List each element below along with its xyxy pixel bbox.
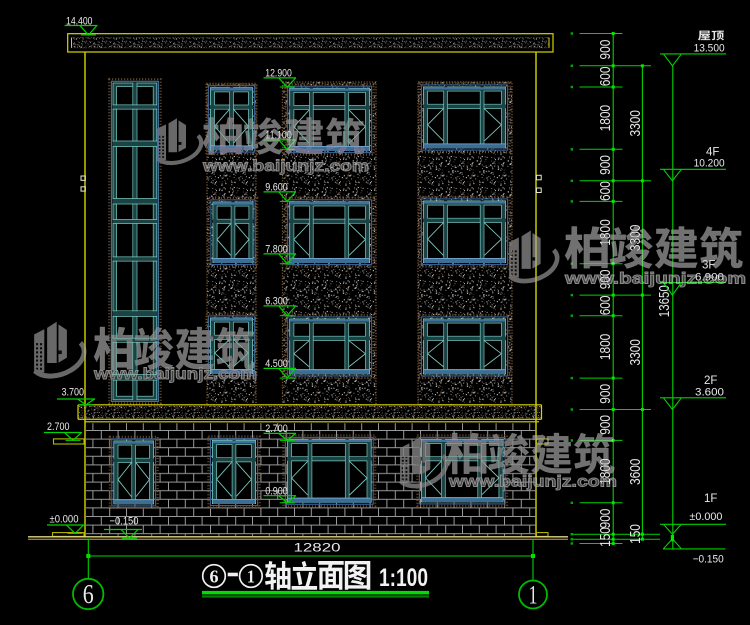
svg-text:3300: 3300 — [628, 339, 644, 365]
svg-text:2.700: 2.700 — [47, 421, 70, 433]
svg-text:1:100: 1:100 — [379, 564, 428, 592]
svg-text:150: 150 — [628, 524, 644, 544]
svg-text:900: 900 — [598, 155, 614, 175]
svg-text:−0.150: −0.150 — [110, 516, 139, 528]
svg-text:1: 1 — [247, 566, 255, 586]
svg-text:900: 900 — [598, 509, 614, 529]
svg-text:600: 600 — [598, 181, 614, 201]
svg-text:3.700: 3.700 — [62, 387, 85, 399]
svg-text:www.baijunjz.com: www.baijunjz.com — [564, 271, 746, 288]
svg-text:150: 150 — [598, 527, 614, 547]
svg-text:600: 600 — [598, 67, 614, 87]
svg-text:−0.150: −0.150 — [693, 554, 724, 566]
svg-text:2F: 2F — [704, 375, 717, 387]
svg-text:1800: 1800 — [598, 105, 614, 131]
svg-text:6: 6 — [210, 566, 219, 586]
svg-text:13650: 13650 — [657, 285, 673, 317]
svg-text:900: 900 — [598, 384, 614, 404]
svg-text:1: 1 — [529, 581, 538, 610]
svg-text:13.500: 13.500 — [694, 43, 725, 55]
svg-text:3600: 3600 — [628, 459, 644, 485]
svg-text:±0.000: ±0.000 — [689, 511, 722, 523]
svg-text:www.baijunjz.com: www.baijunjz.com — [448, 474, 617, 491]
svg-text:900: 900 — [598, 40, 614, 60]
svg-text:3.600: 3.600 — [695, 387, 724, 399]
svg-text:6: 6 — [83, 579, 94, 609]
svg-text:1F: 1F — [704, 493, 717, 505]
svg-text:12820: 12820 — [294, 543, 341, 555]
svg-text:3300: 3300 — [628, 110, 644, 136]
svg-text:www.baijunjz.com: www.baijunjz.com — [93, 366, 257, 383]
svg-text:900: 900 — [598, 415, 614, 435]
svg-text:600: 600 — [598, 296, 614, 316]
svg-text:www.baijunjz.com: www.baijunjz.com — [202, 158, 369, 175]
svg-text:1800: 1800 — [598, 334, 614, 360]
svg-text:±0.000: ±0.000 — [50, 514, 79, 526]
svg-text:10.200: 10.200 — [694, 157, 725, 169]
